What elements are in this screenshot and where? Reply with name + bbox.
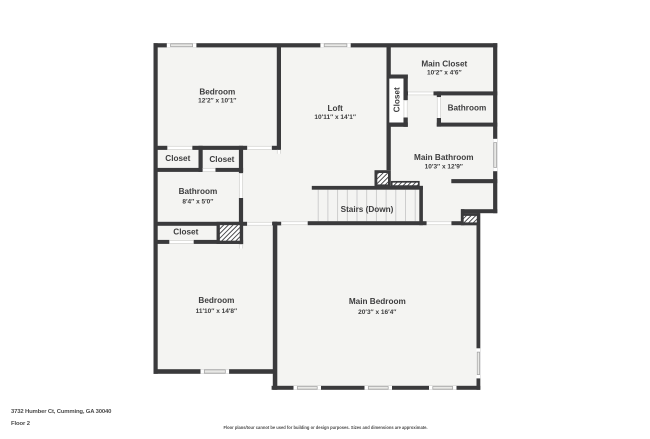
svg-text:Main Bathroom: Main Bathroom [414,153,474,162]
svg-text:10′11″ x 14′1″: 10′11″ x 14′1″ [314,114,356,121]
svg-text:12′2″ x 10′1″: 12′2″ x 10′1″ [198,98,236,105]
svg-text:Floor plans/tour cannot be use: Floor plans/tour cannot be used for buil… [223,425,427,430]
svg-text:Loft: Loft [327,104,343,113]
svg-text:Closet: Closet [165,154,190,163]
svg-text:8′4″ x 5′0″: 8′4″ x 5′0″ [182,198,213,205]
svg-text:Floor 2: Floor 2 [11,421,31,427]
svg-text:10′2″ x 4′6″: 10′2″ x 4′6″ [427,70,462,77]
svg-text:20′3″ x 16′4″: 20′3″ x 16′4″ [358,309,396,316]
svg-text:Closet: Closet [173,228,198,237]
svg-text:11′10″ x 14′8″: 11′10″ x 14′8″ [196,308,238,315]
svg-text:Main Bedroom: Main Bedroom [349,297,406,306]
svg-text:Stairs (Down): Stairs (Down) [341,205,394,214]
svg-text:Bathroom: Bathroom [179,187,218,196]
svg-text:Closet: Closet [209,155,234,164]
svg-text:Bedroom: Bedroom [199,87,235,96]
svg-text:3732 Humber Ct, Cumming, GA 30: 3732 Humber Ct, Cumming, GA 30040 [11,409,112,415]
svg-text:Main Closet: Main Closet [421,59,467,68]
svg-text:Closet: Closet [393,87,402,112]
svg-text:Bedroom: Bedroom [198,296,234,305]
svg-text:10′3″ x 12′9″: 10′3″ x 12′9″ [425,163,463,170]
svg-text:Bathroom: Bathroom [448,104,487,113]
